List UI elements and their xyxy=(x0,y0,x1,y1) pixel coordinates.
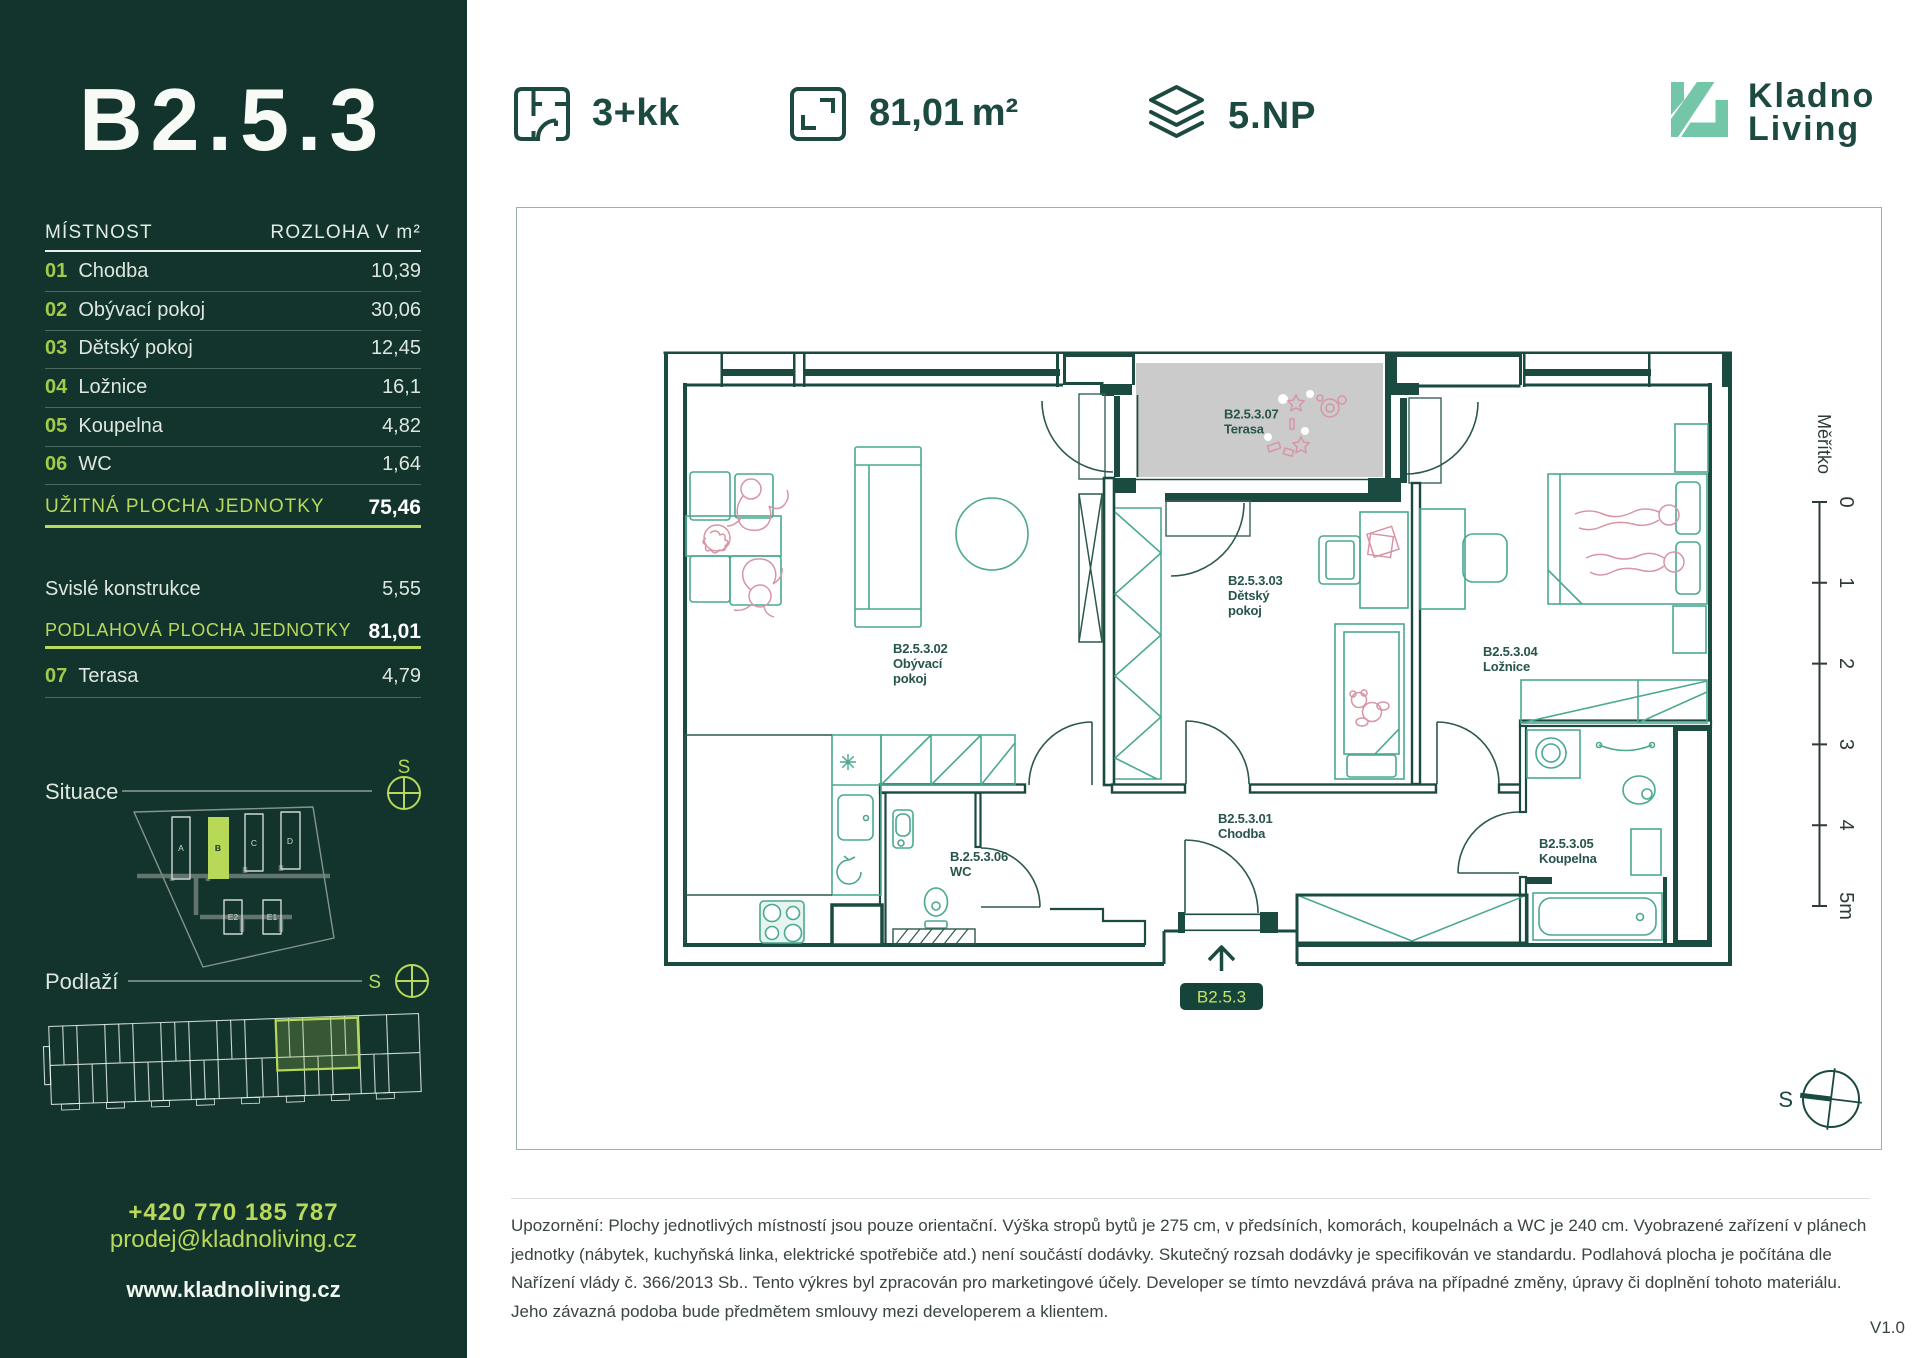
svg-text:B: B xyxy=(215,843,221,853)
svg-text:S: S xyxy=(368,972,381,993)
svg-text:Terasa: Terasa xyxy=(1224,422,1265,437)
svg-text:S: S xyxy=(1778,1087,1793,1112)
svg-text:Měřítko: Měřítko xyxy=(1814,414,1834,474)
svg-text:5m: 5m xyxy=(1835,892,1857,920)
svg-text:1: 1 xyxy=(1835,577,1857,588)
svg-text:B2.5.3.05: B2.5.3.05 xyxy=(1539,836,1594,851)
svg-text:B.2.5.3.06: B.2.5.3.06 xyxy=(950,849,1008,864)
svg-text:Dětský: Dětský xyxy=(1228,588,1270,603)
svg-text:B2.5.3: B2.5.3 xyxy=(1197,988,1246,1007)
svg-text:Obývací: Obývací xyxy=(893,656,943,671)
svg-text:Chodba: Chodba xyxy=(1218,826,1266,841)
svg-text:2: 2 xyxy=(1835,658,1857,669)
svg-text:B2.5.3.04: B2.5.3.04 xyxy=(1483,644,1539,659)
svg-text:B2.5.3.01: B2.5.3.01 xyxy=(1218,811,1273,826)
svg-text:pokoj: pokoj xyxy=(893,671,927,686)
svg-text:Podlaží: Podlaží xyxy=(45,969,118,994)
svg-text:B2.5.3.03: B2.5.3.03 xyxy=(1228,573,1283,588)
svg-text:pokoj: pokoj xyxy=(1228,603,1262,618)
svg-text:4: 4 xyxy=(1835,820,1857,831)
svg-text:WC: WC xyxy=(950,864,972,879)
svg-text:E2: E2 xyxy=(228,912,239,922)
svg-text:Ložnice: Ložnice xyxy=(1483,659,1530,674)
svg-text:S: S xyxy=(398,757,411,778)
svg-text:B2.5.3.07: B2.5.3.07 xyxy=(1224,407,1279,422)
svg-text:A: A xyxy=(178,843,184,853)
svg-text:0: 0 xyxy=(1835,496,1857,507)
svg-text:Situace: Situace xyxy=(45,779,118,804)
svg-text:D: D xyxy=(287,836,293,846)
svg-text:B2.5.3.02: B2.5.3.02 xyxy=(893,641,948,656)
svg-text:3: 3 xyxy=(1835,739,1857,750)
svg-text:Koupelna: Koupelna xyxy=(1539,851,1598,866)
svg-text:C: C xyxy=(251,838,257,848)
svg-text:E1: E1 xyxy=(267,912,278,922)
